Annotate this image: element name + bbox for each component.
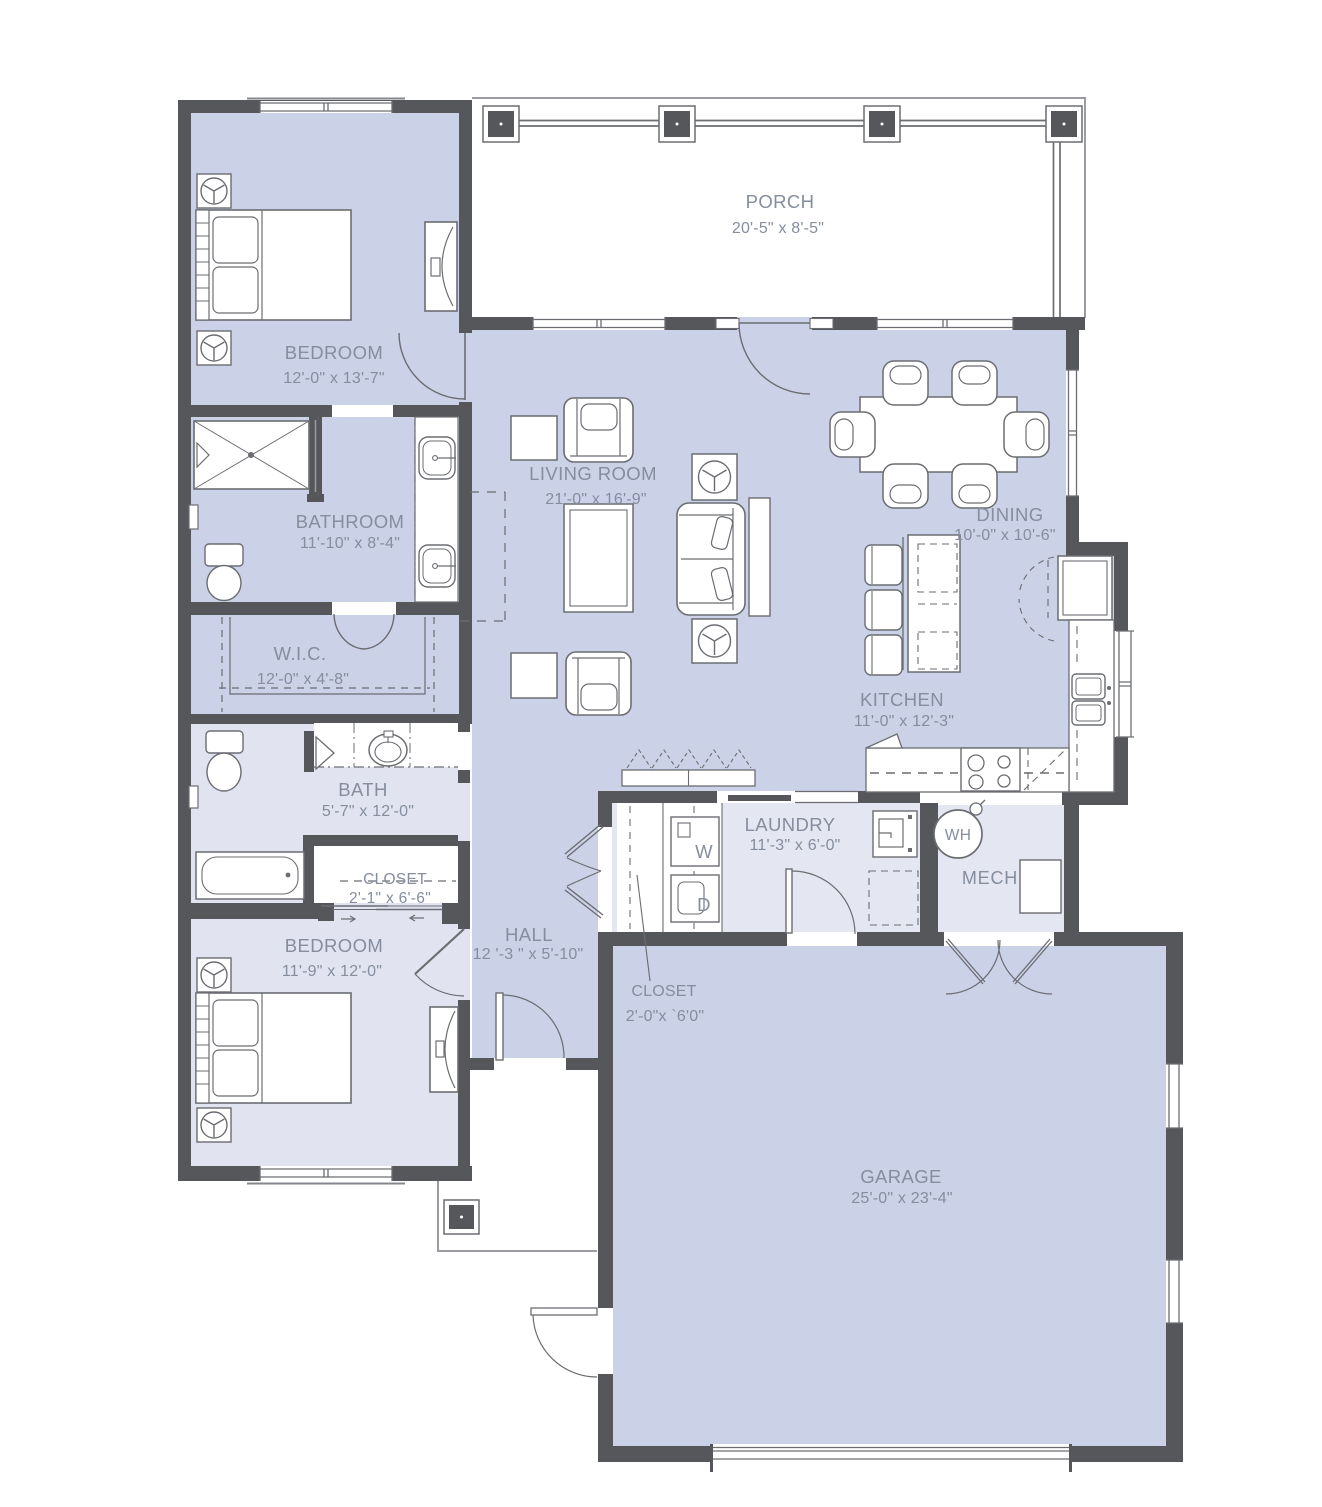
- svg-text:10'-0" x 10'-6": 10'-0" x 10'-6": [954, 527, 1055, 544]
- svg-text:W.I.C.: W.I.C.: [274, 643, 327, 664]
- svg-text:BATH: BATH: [338, 779, 388, 800]
- svg-text:W: W: [695, 841, 713, 862]
- svg-text:2'-0"x `6'0": 2'-0"x `6'0": [626, 1008, 705, 1025]
- svg-text:HALL: HALL: [505, 924, 553, 945]
- svg-text:11'-9" x 12'-0": 11'-9" x 12'-0": [282, 963, 382, 980]
- svg-text:11'-0" x 12'-3": 11'-0" x 12'-3": [854, 713, 954, 730]
- svg-text:D: D: [697, 894, 711, 915]
- svg-text:BEDROOM: BEDROOM: [285, 935, 383, 956]
- svg-text:DINING: DINING: [976, 504, 1043, 525]
- svg-text:WH: WH: [945, 827, 971, 844]
- svg-text:BEDROOM: BEDROOM: [285, 342, 383, 363]
- svg-text:BATHROOM: BATHROOM: [296, 511, 405, 532]
- svg-text:CLOSET: CLOSET: [363, 871, 427, 888]
- svg-text:MECH: MECH: [962, 868, 1018, 888]
- svg-text:CLOSET: CLOSET: [631, 983, 696, 1000]
- svg-text:11'-10" x 8'-4": 11'-10" x 8'-4": [300, 535, 400, 552]
- svg-text:2'-1" x 6'-6": 2'-1" x 6'-6": [349, 890, 431, 907]
- svg-text:21'-0" x 16'-9": 21'-0" x 16'-9": [545, 491, 646, 508]
- svg-text:25'-0" x 23'-4": 25'-0" x 23'-4": [851, 1190, 952, 1207]
- svg-text:PORCH: PORCH: [746, 191, 815, 212]
- svg-text:11'-3" x 6'-0": 11'-3" x 6'-0": [749, 837, 840, 854]
- svg-text:GARAGE: GARAGE: [860, 1166, 942, 1187]
- svg-text:LIVING ROOM: LIVING ROOM: [529, 463, 657, 484]
- svg-text:12 '-3 " x 5'-10": 12 '-3 " x 5'-10": [473, 946, 584, 963]
- svg-text:12'-0" x 13'-7": 12'-0" x 13'-7": [283, 370, 384, 387]
- svg-text:LAUNDRY: LAUNDRY: [745, 814, 836, 835]
- svg-text:5'-7" x 12'-0": 5'-7" x 12'-0": [322, 803, 414, 820]
- svg-text:12'-0" x 4'-8": 12'-0" x 4'-8": [257, 671, 349, 688]
- svg-text:KITCHEN: KITCHEN: [860, 689, 944, 710]
- svg-text:20'-5" x 8'-5": 20'-5" x 8'-5": [732, 220, 824, 237]
